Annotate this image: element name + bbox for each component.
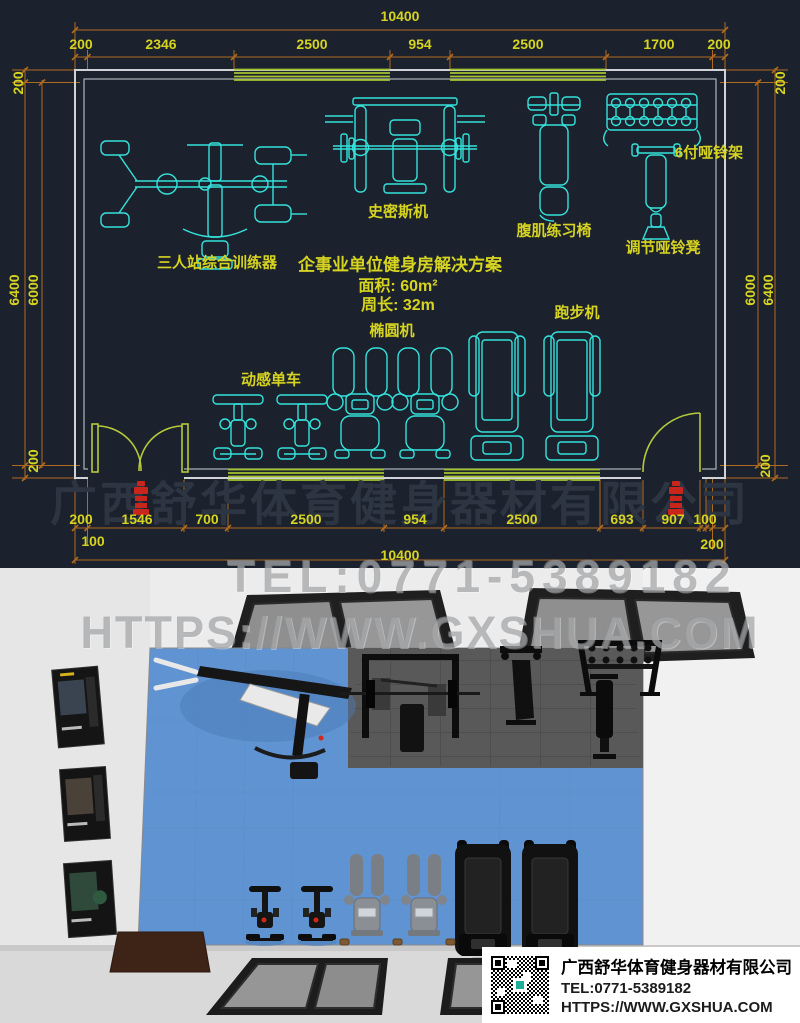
dim-left-outer: 6400: [6, 274, 22, 305]
dim-top-seg-6: 200: [707, 36, 730, 52]
info-url: HTTPS://WWW.GXSHUA.COM: [561, 999, 792, 1016]
dim-side-top-right: 200: [772, 71, 788, 94]
dim-right-inner: 6000: [742, 274, 758, 305]
dim-bottom-seg-2: 700: [195, 511, 218, 527]
cad-adjustable-bench-drawing: [632, 144, 680, 239]
dim-total-top: 10400: [381, 8, 420, 24]
cad-multi-station-drawing: [101, 141, 307, 269]
dim-side-top-left: 200: [10, 71, 26, 94]
dim-top-seg-2: 2500: [296, 36, 327, 52]
poster: [52, 666, 105, 748]
qr-code: [489, 954, 551, 1016]
tel-watermark: TEL:0771-5389182: [227, 549, 738, 603]
dim-top-seg-5: 1700: [643, 36, 674, 52]
label-multi-station: 三人站综合训练器: [157, 252, 277, 273]
dim-top-seg-4: 2500: [512, 36, 543, 52]
cad-smith-machine-drawing: [325, 98, 485, 193]
dim-bottom-seg-7: 907: [661, 511, 684, 527]
dim-bottom-seg-5: 2500: [506, 511, 537, 527]
label-treadmill: 跑步机: [554, 302, 599, 323]
label-adjustable-bench: 调节哑铃凳: [625, 237, 700, 258]
dim-bottom-seg-3: 2500: [290, 511, 321, 527]
cad-ellipticals-drawing: [327, 348, 458, 458]
label-smith-machine: 史密斯机: [368, 201, 428, 222]
label-dumbbell-rack: 6付哑铃架: [675, 142, 743, 163]
dim-side-bottom-left: 200: [25, 449, 41, 472]
door-mat: [110, 932, 210, 972]
dim-bottom-sub-left: 100: [81, 533, 104, 549]
label-elliptical: 椭圆机: [369, 320, 414, 341]
dim-bottom-seg-4: 954: [403, 511, 426, 527]
cad-ab-chair-drawing: [528, 93, 580, 221]
url-watermark: HTTPS://WWW.GXSHUA.COM: [81, 607, 760, 659]
dim-left-inner: 6000: [25, 274, 41, 305]
cad-spin-bikes-drawing: [213, 395, 327, 459]
solution-perimeter: 周长: 32m: [361, 291, 435, 315]
label-ab-chair: 腹肌练习椅: [516, 220, 591, 241]
dim-bottom-seg-6: 693: [610, 511, 633, 527]
dim-top-seg-0: 200: [69, 36, 92, 52]
dim-bottom-seg-0: 200: [69, 511, 92, 527]
dim-bottom-seg-8: 100: [693, 511, 716, 527]
screenshot-root: 广西舒华体育健身器材有限公司 10400 200 2346 2500 954 2…: [0, 0, 800, 1023]
cad-company-watermark: 广西舒华体育健身器材有限公司: [50, 466, 750, 535]
poster: [60, 766, 111, 841]
info-tel: TEL:0771-5389182: [561, 980, 792, 997]
cad-treadmills-drawing: [469, 332, 600, 460]
cad-plan-section: 广西舒华体育健身器材有限公司 10400 200 2346 2500 954 2…: [0, 0, 800, 568]
dim-side-bottom-right: 200: [757, 454, 773, 477]
poster: [63, 860, 116, 937]
dim-top-seg-1: 2346: [145, 36, 176, 52]
cad-dumbbell-rack-drawing: [604, 94, 701, 146]
dim-bottom-seg-1: 1546: [121, 511, 152, 527]
dim-right-outer: 6400: [760, 274, 776, 305]
dim-top-seg-3: 954: [408, 36, 431, 52]
label-spin-bike: 动感单车: [241, 369, 301, 390]
company-info-box: 广西舒华体育健身器材有限公司 TEL:0771-5389182 HTTPS://…: [482, 947, 800, 1023]
info-company-name: 广西舒华体育健身器材有限公司: [561, 954, 792, 978]
